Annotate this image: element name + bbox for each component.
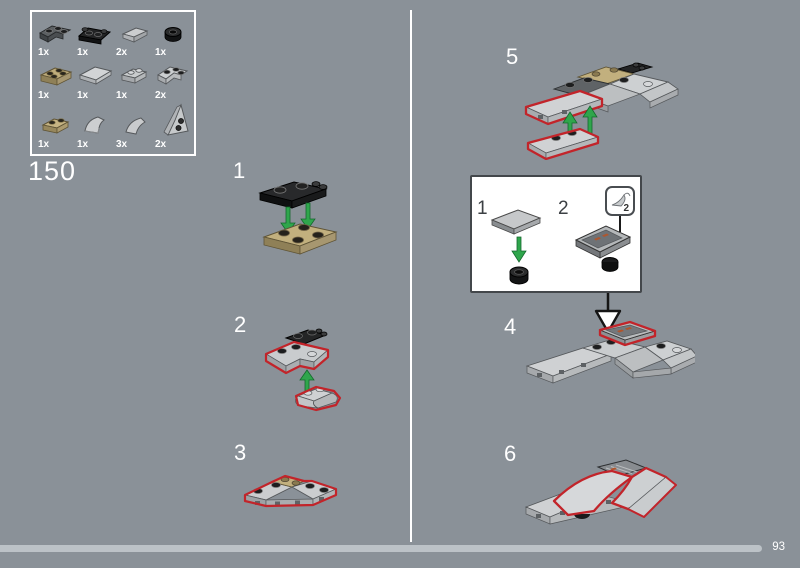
sticker-badge: 2 xyxy=(605,186,635,216)
page-number: 93 xyxy=(772,541,785,553)
part-item: 1x xyxy=(75,60,114,104)
part-item: 1x xyxy=(153,16,192,60)
step-4-number: 4 xyxy=(504,314,516,340)
part-qty-label: 2x xyxy=(116,48,127,58)
part-qty-label: 2x xyxy=(155,140,166,150)
tile-on-round-plate xyxy=(576,226,630,272)
part-qty-label: 1x xyxy=(77,140,88,150)
main-assembly xyxy=(527,339,695,383)
gray-tile xyxy=(492,210,540,234)
bag-number: 150 xyxy=(28,156,76,187)
plate-black-clips-icon xyxy=(76,19,114,47)
part-qty-label: 3x xyxy=(116,140,127,150)
corner-wedge-plate-icon xyxy=(154,60,192,90)
step-2-illustration xyxy=(252,326,344,418)
part-qty-label: 1x xyxy=(116,91,127,101)
part-item: 1x xyxy=(36,16,75,60)
black-plate-with-clips xyxy=(260,182,327,208)
inset-substep-2-label: 2 xyxy=(558,198,569,220)
part-item: 1x xyxy=(114,60,153,104)
part-item: 3x xyxy=(114,103,153,152)
badge-connector-line xyxy=(619,216,621,232)
column-divider xyxy=(410,10,412,542)
corner-plate-dark-gray-icon xyxy=(37,19,75,47)
wedge-plate-tall-icon xyxy=(154,103,192,139)
part-qty-label: 1x xyxy=(155,48,166,58)
black-round-plate xyxy=(510,267,528,284)
part-qty-label: 1x xyxy=(38,140,49,150)
green-arrow-icon xyxy=(512,237,526,262)
part-qty-label: 1x xyxy=(38,91,49,101)
plate-1x2-gray-icon xyxy=(115,60,153,90)
step-6-number: 6 xyxy=(504,441,516,467)
slope-tile-icon xyxy=(115,19,153,47)
part-item: 1x xyxy=(75,103,114,152)
part-item: 2x xyxy=(153,60,192,104)
step-1-number: 1 xyxy=(233,158,245,184)
step-1-illustration xyxy=(250,175,360,270)
curved-slope-icon xyxy=(76,109,114,139)
inset-substep-1-illustration xyxy=(486,206,546,292)
step-3-illustration xyxy=(240,463,345,523)
part-item: 2x xyxy=(153,103,192,152)
round-plate-black-icon xyxy=(154,19,192,47)
sticker-badge-number: 2 xyxy=(623,203,629,214)
step-4-illustration xyxy=(525,320,695,395)
lower-subassembly xyxy=(295,387,340,410)
instruction-page: 1x 1x 2x xyxy=(0,0,800,568)
curved-slope-small-icon xyxy=(115,109,153,139)
sticker-peel-icon xyxy=(607,188,633,214)
part-qty-label: 1x xyxy=(77,91,88,101)
part-item: 2x xyxy=(114,16,153,60)
inset-substep-2-illustration xyxy=(570,218,642,276)
part-qty-label: 2x xyxy=(155,91,166,101)
part-item: 1x xyxy=(36,103,75,152)
step-5-illustration xyxy=(518,55,685,160)
step-5-number: 5 xyxy=(506,44,518,70)
part-qty-label: 1x xyxy=(77,48,88,58)
part-item: 1x xyxy=(36,60,75,104)
new-parts-panel: 1x 1x 2x xyxy=(30,10,196,156)
step-2-number: 2 xyxy=(234,312,246,338)
tan-plate xyxy=(264,224,336,254)
loose-wedge-highlighted xyxy=(528,129,598,159)
progress-bar xyxy=(0,545,762,552)
plate-dark-tan-icon xyxy=(37,60,75,90)
step-6-illustration xyxy=(524,455,684,535)
part-qty-label: 1x xyxy=(38,48,49,58)
part-item: 1x xyxy=(75,16,114,60)
plate-1x2-tan-icon xyxy=(37,109,75,139)
tile-light-gray-icon xyxy=(76,60,114,90)
